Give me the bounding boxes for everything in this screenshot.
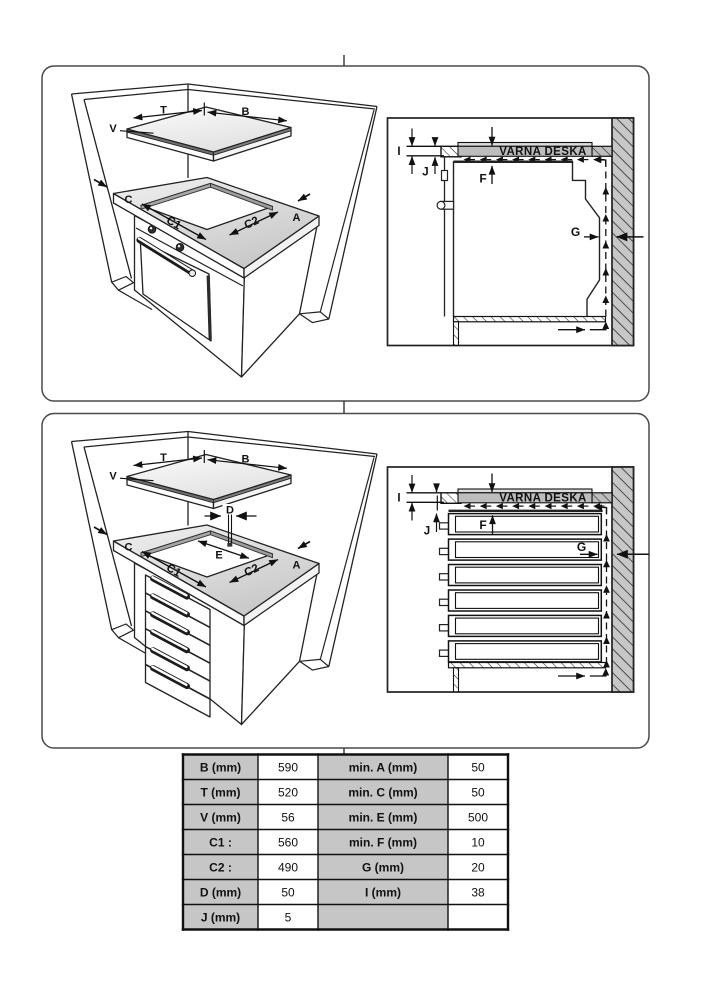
svg-text:T: T (160, 452, 167, 464)
svg-text:V: V (109, 471, 117, 483)
svg-text:500: 500 (468, 811, 488, 825)
svg-text:A: A (293, 212, 301, 224)
svg-text:50: 50 (281, 886, 295, 900)
svg-text:5: 5 (285, 911, 292, 925)
svg-text:VARNA DESKA: VARNA DESKA (499, 493, 586, 505)
svg-text:10: 10 (471, 836, 485, 850)
svg-text:J: J (422, 167, 428, 179)
svg-text:I: I (397, 493, 400, 505)
svg-text:520: 520 (278, 786, 298, 800)
svg-text:D: D (226, 505, 234, 517)
svg-text:G: G (571, 225, 580, 239)
svg-text:F: F (479, 518, 486, 532)
svg-text:min. C (mm): min. C (mm) (348, 786, 417, 800)
svg-text:590: 590 (278, 761, 298, 775)
svg-text:G: G (577, 540, 586, 554)
svg-text:T (mm): T (mm) (201, 786, 241, 800)
svg-text:B: B (242, 454, 250, 466)
svg-text:20: 20 (471, 861, 485, 875)
svg-text:A: A (293, 560, 301, 572)
svg-text:B (mm): B (mm) (200, 761, 241, 775)
svg-text:VARNA DESKA: VARNA DESKA (499, 146, 586, 158)
svg-text:490: 490 (278, 861, 298, 875)
svg-text:F: F (479, 172, 486, 186)
svg-text:56: 56 (281, 811, 295, 825)
svg-text:V (mm): V (mm) (200, 811, 241, 825)
svg-text:38: 38 (471, 886, 485, 900)
svg-text:C1 :: C1 : (209, 836, 232, 850)
svg-text:560: 560 (278, 836, 298, 850)
svg-text:V: V (109, 123, 117, 135)
svg-text:50: 50 (471, 761, 485, 775)
svg-text:min. E (mm): min. E (mm) (349, 811, 418, 825)
svg-text:E: E (215, 550, 222, 562)
svg-text:I (mm): I (mm) (365, 886, 401, 900)
svg-text:G (mm): G (mm) (362, 861, 404, 875)
svg-text:I: I (397, 146, 400, 158)
svg-text:min. F (mm): min. F (mm) (349, 836, 417, 850)
svg-text:50: 50 (471, 786, 485, 800)
svg-text:T: T (160, 105, 167, 117)
svg-text:C: C (125, 194, 133, 206)
svg-text:C2 :: C2 : (209, 861, 232, 875)
svg-text:J (mm): J (mm) (201, 911, 240, 925)
svg-text:C: C (125, 542, 133, 554)
svg-text:J: J (424, 526, 430, 538)
svg-text:D (mm): D (mm) (200, 886, 241, 900)
svg-text:B: B (242, 106, 250, 118)
svg-text:min. A (mm): min. A (mm) (349, 761, 417, 775)
